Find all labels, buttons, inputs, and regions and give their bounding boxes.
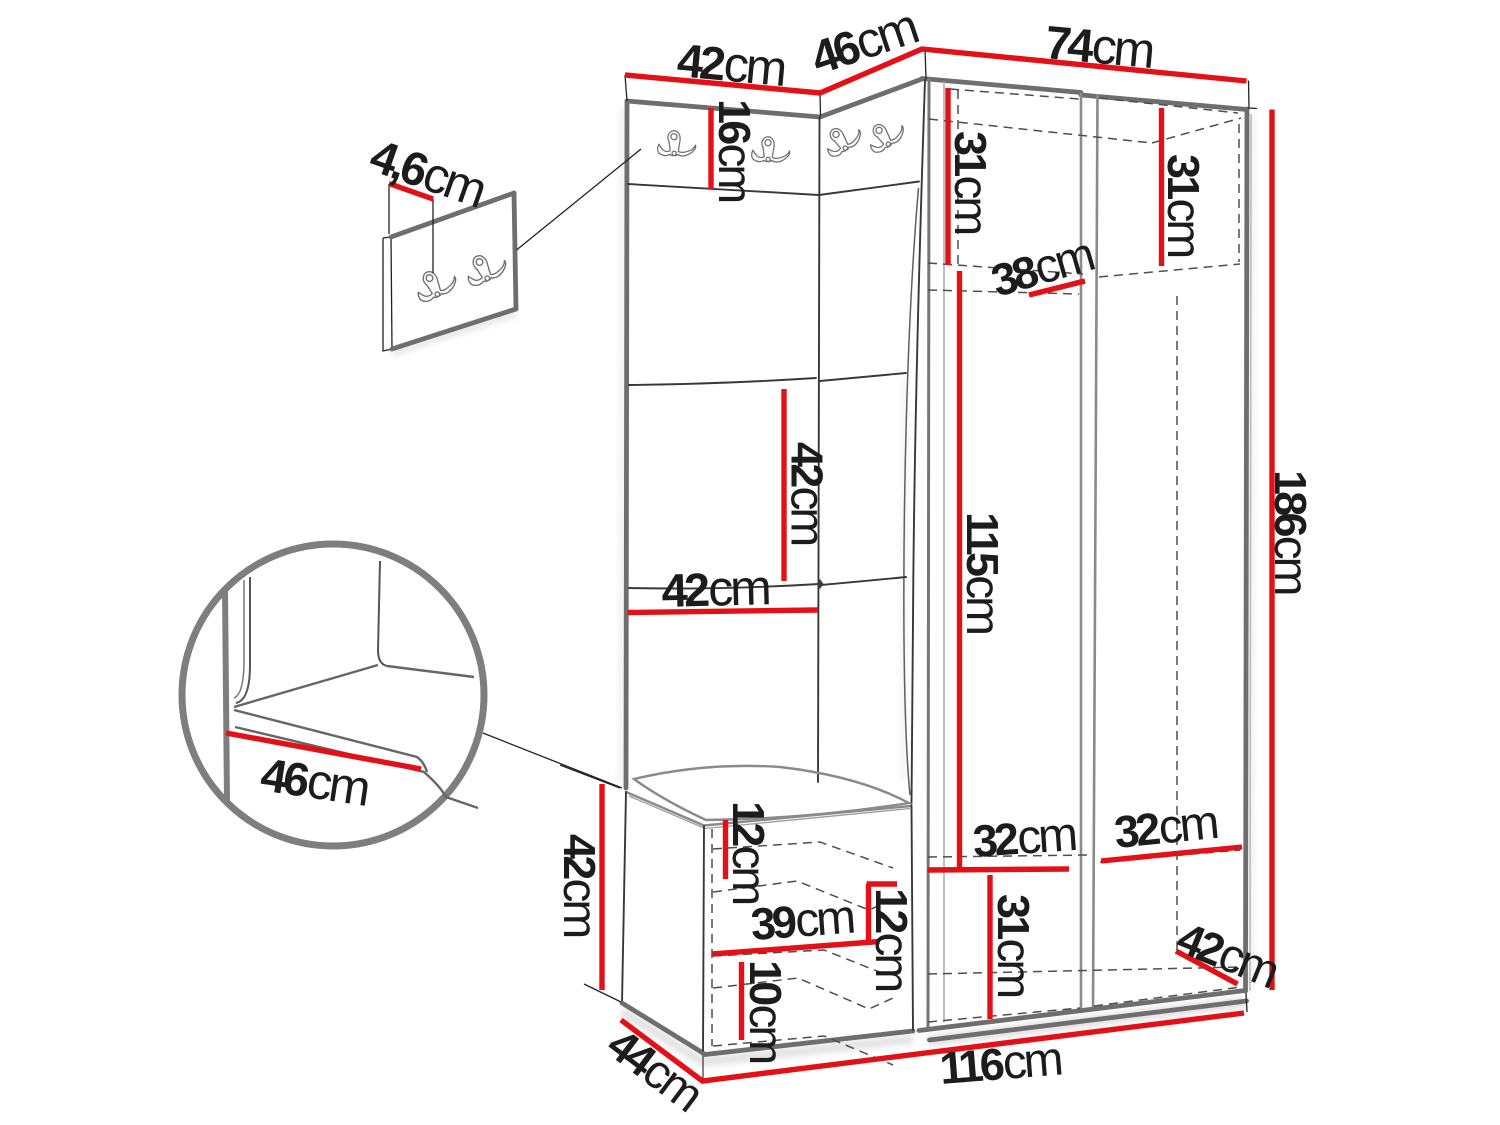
svg-text:115cm: 115cm (956, 512, 1009, 633)
svg-text:32cm: 32cm (971, 808, 1077, 868)
svg-text:74cm: 74cm (1043, 13, 1155, 79)
svg-text:42cm: 42cm (553, 834, 606, 936)
svg-text:16cm: 16cm (708, 99, 761, 201)
svg-text:12cm: 12cm (722, 801, 775, 903)
svg-text:32cm: 32cm (1112, 796, 1219, 859)
svg-text:42cm: 42cm (781, 442, 834, 544)
svg-text:12cm: 12cm (865, 888, 918, 990)
svg-text:186cm: 186cm (1264, 470, 1317, 593)
svg-text:31cm: 31cm (1157, 154, 1210, 256)
svg-text:42cm: 42cm (661, 559, 770, 618)
svg-text:31cm: 31cm (987, 894, 1040, 996)
svg-text:10cm: 10cm (739, 960, 792, 1062)
svg-text:42cm: 42cm (675, 31, 787, 97)
svg-text:31cm: 31cm (944, 131, 997, 233)
svg-text:39cm: 39cm (749, 891, 855, 951)
